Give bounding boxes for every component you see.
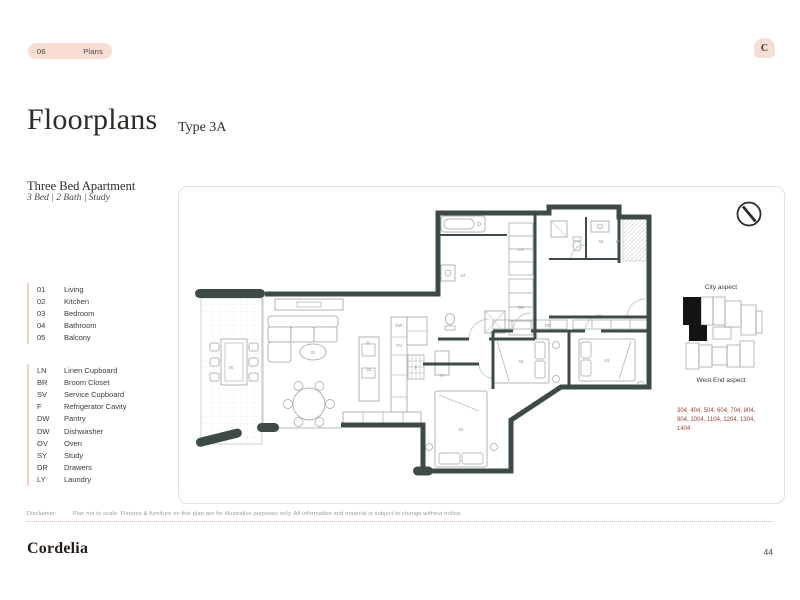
kitchen-cabinets <box>343 317 427 424</box>
junction-wall-bar <box>257 423 279 432</box>
section-number: 06 <box>37 47 46 56</box>
legend-row: DWPantry <box>37 413 127 425</box>
room-label: 03 <box>459 427 464 432</box>
legend-code: LN <box>37 366 64 375</box>
floorplan-svg: 0501020303030404SYLNBRLYFOVDWDR <box>191 199 661 499</box>
legend-label: Bathroom <box>64 321 97 330</box>
room-label: 02 <box>367 367 372 372</box>
legend-code: 05 <box>37 333 64 342</box>
console-table <box>275 299 343 310</box>
legend-row: BRBroom Closet <box>37 376 127 388</box>
vanity <box>591 221 609 232</box>
bathroom-1-fixtures <box>441 216 505 333</box>
brand-mark: C <box>754 38 775 58</box>
legend-code: 01 <box>37 285 64 294</box>
legend-label: Service Cupboard <box>64 390 124 399</box>
master-wall-cap <box>413 467 433 476</box>
floorplan-drawing: 0501020303030404SYLNBRLYFOVDWDR <box>191 199 661 499</box>
legend-label: Living <box>64 285 84 294</box>
brand-wordmark: Cordelia <box>27 540 88 558</box>
room-label: DW <box>396 323 403 328</box>
bathtub <box>441 216 485 232</box>
legend-code: BR <box>37 378 64 387</box>
legend-row: LYLaundry <box>37 474 127 486</box>
legend-code: OV <box>37 439 64 448</box>
legend-label: Bedroom <box>64 309 94 318</box>
room-label: DR <box>545 323 551 328</box>
section-badge: 06 Plans <box>28 43 112 59</box>
apartment-name: Three Bed Apartment <box>27 179 135 194</box>
room-label: 03 <box>605 358 610 363</box>
room-label: 01 <box>311 350 316 355</box>
legend-code: 02 <box>37 297 64 306</box>
legend-code: DW <box>37 427 64 436</box>
brand-mark-letter: C <box>761 43 768 54</box>
legend-label: Study <box>64 451 83 460</box>
plan-type-label: Type 3A <box>178 120 226 136</box>
legend-row: SYStudy <box>37 449 127 461</box>
aspect-bottom-label: West End aspect <box>677 377 765 384</box>
balcony-top-wall <box>195 289 265 298</box>
disclaimer: Disclaimer: Plan not to scale. Fixtures … <box>27 511 462 517</box>
legend-code: SV <box>37 390 64 399</box>
legend-label: Oven <box>64 439 82 448</box>
keyplan-diagram <box>678 295 764 375</box>
floorplan-panel: 0501020303030404SYLNBRLYFOVDWDR City asp… <box>178 186 785 504</box>
page-number: 44 <box>764 547 773 557</box>
unit-numbers-line: 304, 404, 504, 604, 704, 804, <box>677 407 781 416</box>
highlighted-unit <box>683 297 707 341</box>
legend-label: Kitchen <box>64 297 89 306</box>
aspect-top-label: City aspect <box>677 284 765 291</box>
legend-row: LNLinen Cupboard <box>37 364 127 376</box>
legend-code: 04 <box>37 321 64 330</box>
disclaimer-text: Plan not to scale. Fixtures & furniture … <box>72 511 461 517</box>
bed-3 <box>579 339 645 389</box>
legend-label: Drawers <box>64 463 92 472</box>
legend-row: 04Bathroom <box>37 320 97 332</box>
legend-row: 05Balcony <box>37 332 97 344</box>
legend-row: 01Living <box>37 283 97 295</box>
vanity <box>441 265 455 281</box>
unit-numbers-line: 904, 1004, 1104, 1204, 1304, <box>677 416 781 425</box>
laundry-area <box>623 219 647 261</box>
toilet <box>446 314 455 325</box>
legend-label: Broom Closet <box>64 378 109 387</box>
disclaimer-label: Disclaimer: <box>27 511 57 517</box>
legend-row: 02Kitchen <box>37 295 97 307</box>
brochure-page: 06 Plans C Floorplans Type 3A Three Bed … <box>0 0 800 600</box>
room-label: OV <box>396 343 402 348</box>
legend-label: Laundry <box>64 475 91 484</box>
room-label: 04 <box>599 239 604 244</box>
bathroom-2-fixtures <box>551 221 609 251</box>
legend-code: SY <box>37 451 64 460</box>
bed-2 <box>493 339 560 383</box>
legend-code: LY <box>37 475 64 484</box>
legend-code: DW <box>37 414 64 423</box>
linen-closets <box>509 223 533 335</box>
legend-row: FRefrigerator Cavity <box>37 401 127 413</box>
room-label: 05 <box>229 365 234 370</box>
legend-row: 03Bedroom <box>37 307 97 319</box>
page-title: Floorplans <box>27 103 157 137</box>
room-label: 04 <box>461 273 466 278</box>
legend-label: Refrigerator Cavity <box>64 402 127 411</box>
legend-row: DWDishwasher <box>37 425 127 437</box>
room-label: LN <box>518 247 523 252</box>
legend-code: 03 <box>37 309 64 318</box>
unit-numbers-line: 1404 <box>677 425 781 434</box>
apartment-spec: 3 Bed | 2 Bath | Study <box>27 193 110 203</box>
feature-legend: LNLinen Cupboard BRBroom Closet SVServic… <box>27 364 127 486</box>
section-label: Plans <box>83 47 103 56</box>
legend-row: DRDrawers <box>37 462 127 474</box>
room-label: LY <box>616 239 621 244</box>
unit-numbers: 304, 404, 504, 604, 704, 804, 904, 1004,… <box>677 407 781 434</box>
legend-label: Dishwasher <box>64 427 103 436</box>
legend-label: Linen Cupboard <box>64 366 117 375</box>
legend-row: OVOven <box>37 437 127 449</box>
room-legend: 01Living 02Kitchen 03Bedroom 04Bathroom … <box>27 283 97 344</box>
legend-code: F <box>37 402 64 411</box>
room-label: SY <box>439 373 445 378</box>
legend-label: Pantry <box>64 414 86 423</box>
legend-label: Balcony <box>64 333 91 342</box>
north-indicator-icon <box>735 200 763 228</box>
legend-row: SVService Cupboard <box>37 388 127 400</box>
room-label: 03 <box>519 359 524 364</box>
dining-table <box>284 382 335 427</box>
room-label: BR <box>518 305 524 310</box>
legend-code: DR <box>37 463 64 472</box>
room-label: F <box>415 365 418 370</box>
footer-divider <box>27 521 773 522</box>
